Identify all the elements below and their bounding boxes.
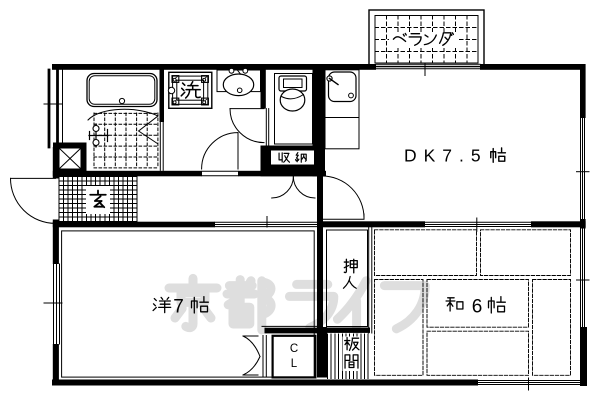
svg-text:DK7.5: DK7.5 <box>404 146 488 166</box>
svg-text:C: C <box>290 343 298 355</box>
svg-text:L: L <box>291 358 298 370</box>
svg-text:7: 7 <box>173 297 184 318</box>
svg-text:6: 6 <box>472 297 483 318</box>
